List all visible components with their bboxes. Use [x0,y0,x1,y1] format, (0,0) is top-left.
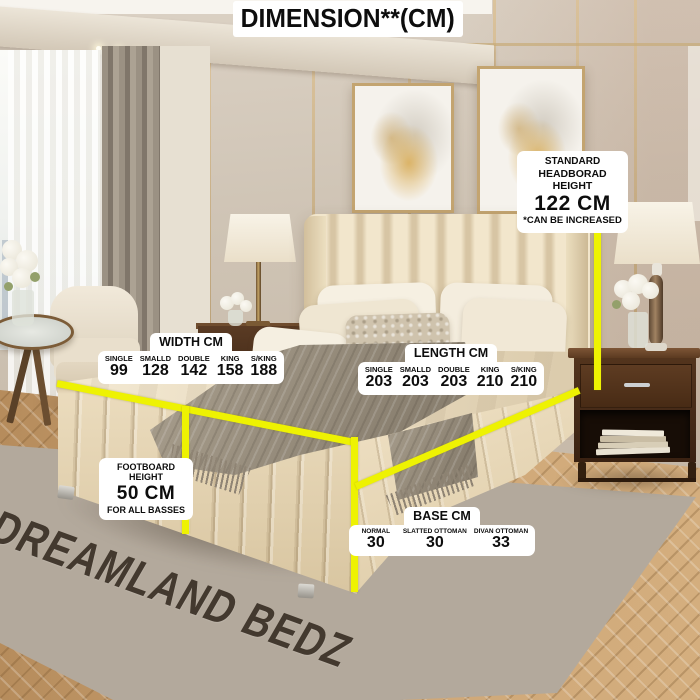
length-col: S/KING210 [510,365,537,391]
leaf [4,282,13,291]
bed-dimension-advert: DREAMLAND BEDZ [0,0,700,700]
length-table-body: SINGLE203 SMALLD203 DOUBLE203 KING210 S/… [358,362,544,395]
width-col: KING158 [217,354,244,380]
flower [622,292,640,310]
corner-measure-line [351,437,358,592]
footboard-label-note: FOR ALL BASSES [101,505,191,515]
book [602,429,664,436]
headboard-label-line1: STANDARD [519,156,626,168]
width-col: SMALLD128 [140,354,171,380]
headboard-wing-right [566,216,588,356]
base-col: NORMAL30 [356,528,396,552]
length-col: KING210 [477,365,504,391]
leaf [30,272,40,282]
headboard-measure-line [594,212,601,390]
table-lamp-left-shade [224,214,296,262]
headboard-height-label: STANDARD HEADBORAD HEIGHT 122 CM *CAN BE… [517,151,628,233]
base-table-body: NORMAL30 SLATTED OTTOMAN30 DIVAN OTTOMAN… [349,525,535,556]
flower [642,282,659,299]
dimension-title-text: DIMENSION**(CM) [241,4,455,34]
length-col: SMALLD203 [400,365,431,391]
width-table-header: WIDTH CM [150,333,232,352]
width-col: SINGLE99 [105,354,133,380]
bed-foot-left [57,485,75,500]
flower-vase-left [12,290,34,326]
width-table: WIDTH CM SINGLE99 SMALLD128 DOUBLE142 KI… [112,333,270,384]
width-table-body: SINGLE99 SMALLD128 DOUBLE142 KING158 S/K… [98,351,284,384]
headboard-height-value: 122 CM [519,192,626,216]
wall-painting-left [352,83,454,213]
headboard-label-line2: HEADBORAD HEIGHT [519,168,626,192]
footboard-label-line1: FOOTBOARD HEIGHT [101,462,191,483]
length-table-header: LENGTH CM [405,344,497,363]
leaf [612,300,621,309]
flower [12,268,32,288]
length-table: LENGTH CM SINGLE203 SMALLD203 DOUBLE203 … [367,344,535,395]
dimension-title: DIMENSION**(CM) [233,1,463,37]
table-lamp-right-base [645,343,667,351]
bed-foot-right [298,583,315,598]
base-table: BASE CM NORMAL30 SLATTED OTTOMAN30 DIVAN… [369,507,515,556]
nightstand-right-top [568,348,700,358]
book [600,436,666,442]
flower-vase-right [628,312,648,348]
width-col: DOUBLE142 [178,354,210,380]
footboard-height-value: 50 CM [101,483,191,505]
flower-vase-nightstand [228,310,243,326]
table-lamp-left-stem [256,262,261,324]
base-col: DIVAN OTTOMAN33 [474,528,528,552]
width-col: S/KING188 [250,354,277,380]
length-col: SINGLE203 [365,365,393,391]
book [598,441,668,448]
drawer-handle [624,383,650,387]
nightstand-stretcher [578,478,696,482]
wall-panel-right [688,46,700,221]
length-col: DOUBLE203 [438,365,470,391]
base-table-header: BASE CM [404,507,480,526]
table-lamp-left-base [246,321,270,326]
headboard-label-note: *CAN BE INCREASED [519,216,626,227]
base-col: SLATTED OTTOMAN30 [403,528,467,552]
footboard-height-label: FOOTBOARD HEIGHT 50 CM FOR ALL BASSES [99,458,193,520]
